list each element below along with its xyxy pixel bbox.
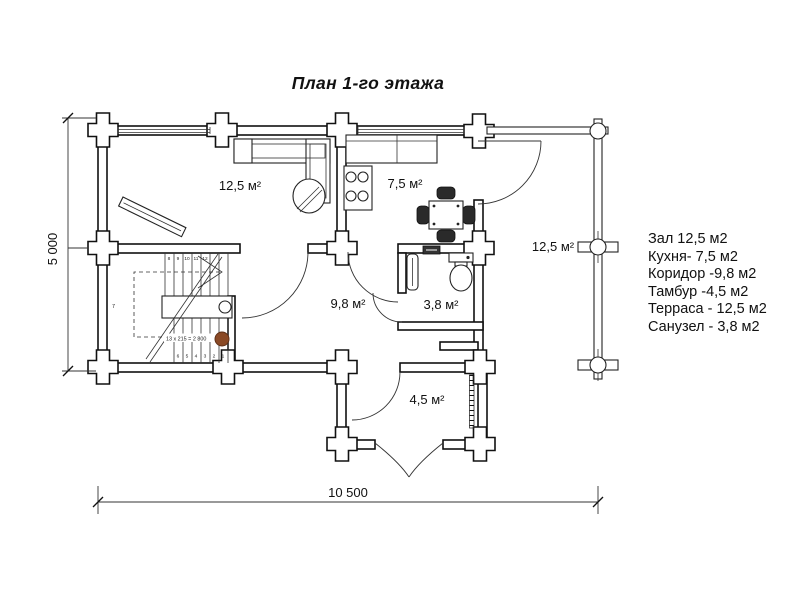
width-dimension: 10 500 [93, 485, 603, 514]
doors [242, 141, 541, 477]
door-living-corridor [242, 252, 308, 318]
room-label-corridor: 9,8 м² [331, 296, 367, 311]
svg-text:6: 6 [177, 354, 180, 360]
svg-text:9: 9 [177, 256, 180, 262]
svg-text:8: 8 [168, 256, 171, 262]
floor-plan-page: План 1-го этажа Зал 12,5 м2 Кухня- 7,5 м… [0, 0, 800, 600]
svg-text:1: 1 [222, 354, 225, 360]
kitchen-counter [346, 135, 437, 163]
entry-door-right-leaf [409, 443, 443, 477]
terrace-post [590, 123, 606, 139]
room-label-bathroom: 3,8 м² [424, 297, 460, 312]
svg-text:2: 2 [213, 354, 216, 360]
svg-text:4: 4 [195, 354, 198, 360]
room-label-hall: 12,5 м² [219, 178, 262, 193]
svg-text:3: 3 [204, 354, 207, 360]
entry-door-left-leaf [375, 443, 409, 477]
door-corridor-tambour [352, 372, 400, 420]
svg-text:5: 5 [186, 354, 189, 360]
dimension-height-label: 5 000 [45, 233, 60, 266]
door-kitchen-terrace [478, 141, 541, 204]
newel-post-dot [215, 332, 229, 346]
svg-text:12: 12 [202, 256, 208, 262]
floor-plan-drawing: 8 9 10 11 12 6 5 4 3 2 1 7 13 x 215 = 2 … [0, 0, 800, 600]
stair-pole [219, 301, 231, 313]
svg-text:10: 10 [184, 256, 190, 262]
corner-sofa [234, 139, 330, 213]
stairs: 8 9 10 11 12 6 5 4 3 2 1 7 13 x 215 = 2 … [112, 253, 232, 363]
stair-formula: 13 x 215 = 2 800 [166, 337, 206, 343]
bathroom-sink [423, 246, 440, 254]
windows [118, 127, 474, 428]
stair-floor-number: 7 [112, 304, 115, 310]
room-label-tambour: 4,5 м² [410, 392, 446, 407]
dimension-width-label: 10 500 [328, 485, 368, 500]
svg-text:11: 11 [194, 256, 199, 262]
radiator [407, 254, 418, 290]
room-label-kitchen: 7,5 м² [388, 176, 424, 191]
fireplace [119, 197, 186, 237]
room-label-terrace: 12,5 м² [532, 239, 575, 254]
log-joint-crosses [88, 113, 495, 461]
stove [344, 166, 372, 210]
furniture [119, 135, 475, 291]
dining-table [417, 187, 475, 242]
toilet [449, 253, 473, 291]
terrace-post [590, 357, 606, 373]
terrace-post [590, 239, 606, 255]
